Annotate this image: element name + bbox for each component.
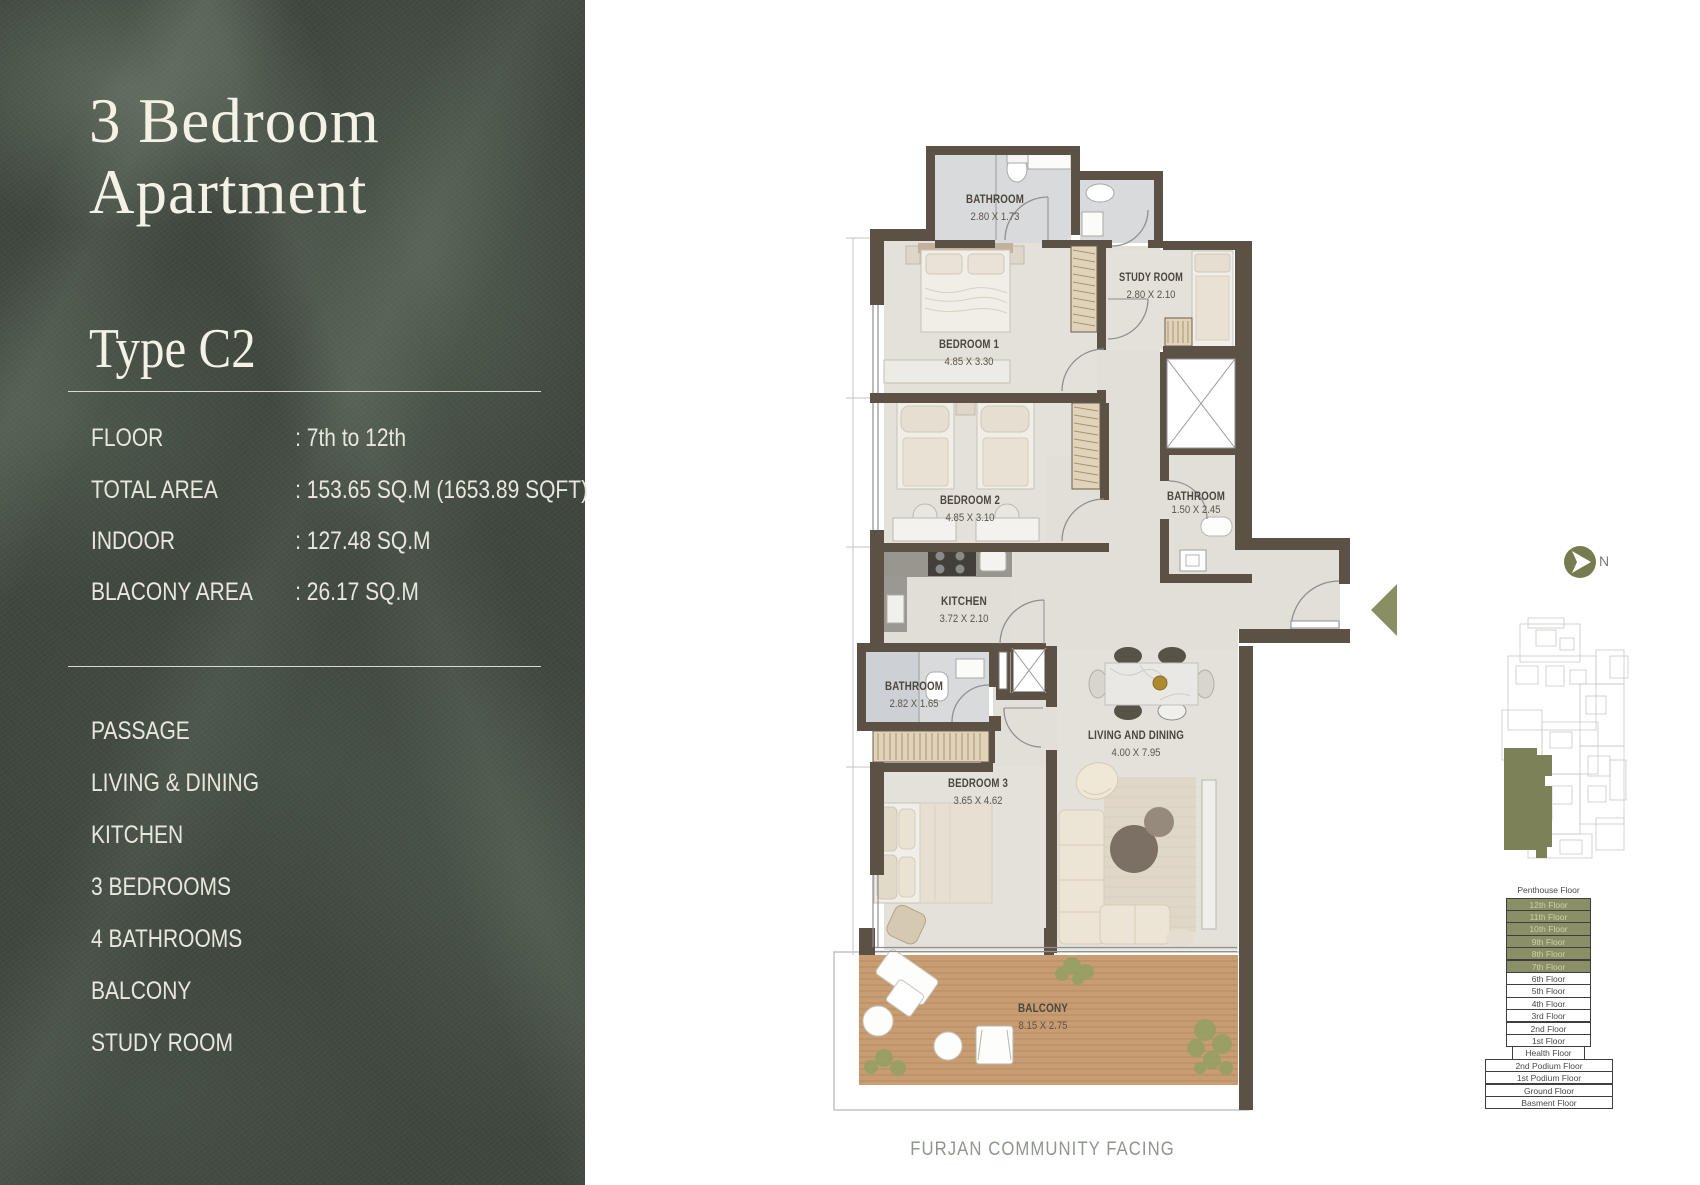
svg-text:KITCHEN: KITCHEN	[941, 596, 987, 608]
svg-text:1.50 X 2.45: 1.50 X 2.45	[1172, 504, 1221, 516]
svg-text:BEDROOM 3: BEDROOM 3	[948, 778, 1008, 790]
svg-text:4.85 X 3.10: 4.85 X 3.10	[946, 512, 995, 524]
svg-text:2.80 X 1.73: 2.80 X 1.73	[971, 211, 1020, 223]
svg-text:BATHROOM: BATHROOM	[885, 681, 943, 693]
svg-text:BEDROOM 2: BEDROOM 2	[940, 495, 1000, 507]
svg-text:BALCONY: BALCONY	[1018, 1003, 1068, 1015]
svg-text:2.82 X 1.65: 2.82 X 1.65	[890, 698, 939, 710]
svg-text:LIVING AND DINING: LIVING AND DINING	[1088, 730, 1184, 742]
svg-text:BATHROOM: BATHROOM	[1167, 491, 1225, 503]
svg-text:STUDY ROOM: STUDY ROOM	[1119, 272, 1183, 284]
svg-text:3.65 X 4.62: 3.65 X 4.62	[954, 795, 1003, 807]
svg-text:3.72 X 2.10: 3.72 X 2.10	[940, 613, 989, 625]
svg-text:4.85 X 3.30: 4.85 X 3.30	[945, 356, 994, 368]
svg-text:8.15 X 2.75: 8.15 X 2.75	[1019, 1020, 1068, 1032]
svg-text:BATHROOM: BATHROOM	[966, 194, 1024, 206]
svg-text:2.80 X 2.10: 2.80 X 2.10	[1127, 289, 1176, 301]
svg-text:4.00 X 7.95: 4.00 X 7.95	[1112, 747, 1161, 759]
svg-text:BEDROOM 1: BEDROOM 1	[939, 339, 999, 351]
